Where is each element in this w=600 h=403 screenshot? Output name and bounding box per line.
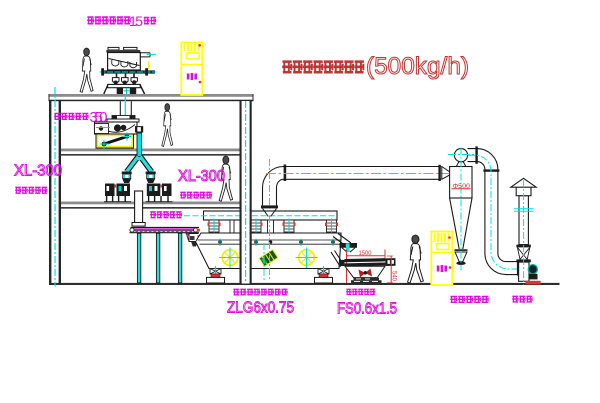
- svg-text:Φ500: Φ500: [453, 183, 471, 190]
- svg-text:FS0.6x1.5: FS0.6x1.5: [337, 301, 397, 318]
- svg-text:350: 350: [90, 110, 108, 126]
- svg-text:1.5: 1.5: [129, 13, 143, 29]
- svg-text:(500kg/h): (500kg/h): [366, 53, 469, 80]
- svg-text:1500: 1500: [359, 250, 373, 257]
- svg-text:540: 540: [391, 271, 397, 282]
- svg-text:XL-300: XL-300: [178, 168, 225, 185]
- svg-text:ZLG6x0.75: ZLG6x0.75: [227, 300, 294, 317]
- svg-text:XL-300: XL-300: [14, 163, 62, 180]
